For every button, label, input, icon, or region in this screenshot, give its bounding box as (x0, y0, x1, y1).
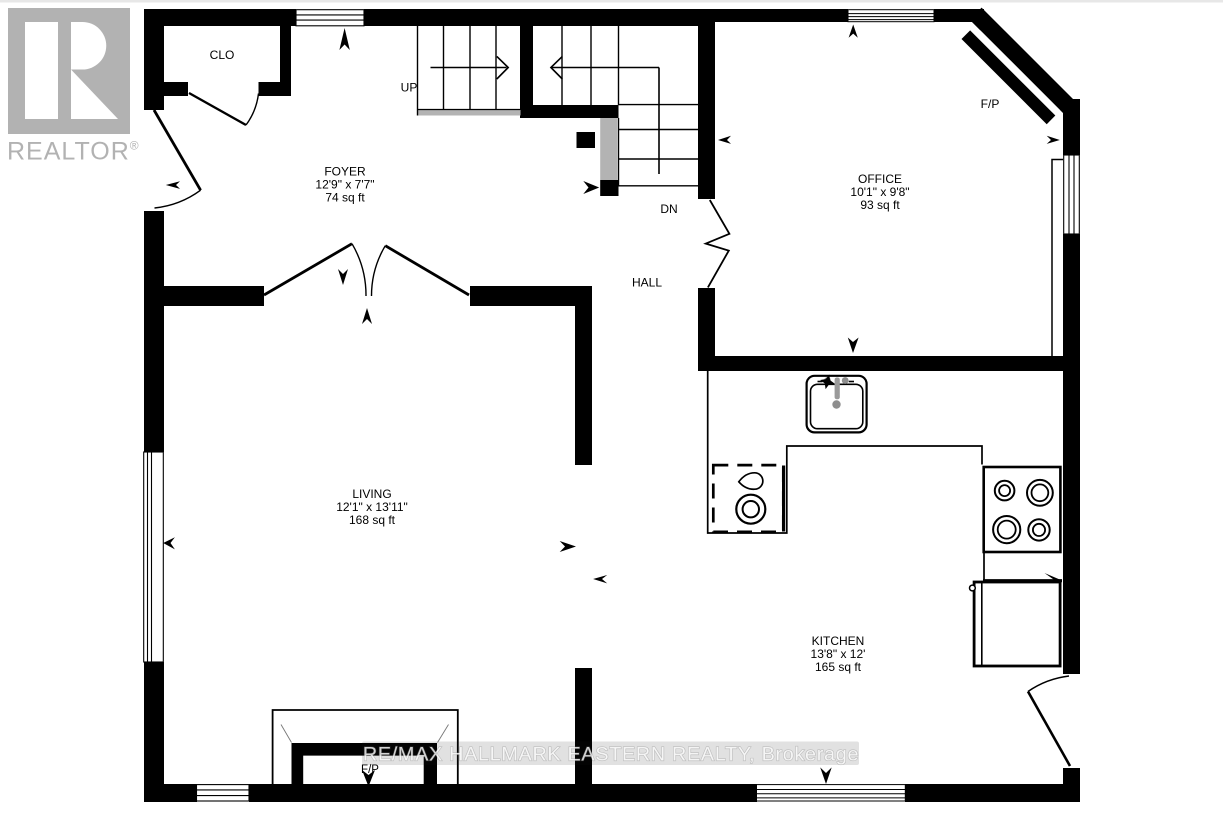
svg-text:DN: DN (660, 202, 677, 216)
svg-text:REALTOR®: REALTOR® (7, 138, 140, 166)
svg-text:FOYER: FOYER (324, 165, 366, 179)
svg-text:74 sq ft: 74 sq ft (325, 191, 365, 205)
svg-text:12'9" x 7'7": 12'9" x 7'7" (315, 178, 374, 192)
svg-text:HALL: HALL (632, 276, 662, 290)
svg-text:OFFICE: OFFICE (858, 172, 902, 186)
svg-text:KITCHEN: KITCHEN (812, 634, 865, 648)
svg-text:93 sq ft: 93 sq ft (860, 198, 900, 212)
svg-text:168 sq ft: 168 sq ft (349, 513, 396, 527)
svg-text:LIVING: LIVING (352, 487, 391, 501)
svg-text:13'8" x 12': 13'8" x 12' (811, 647, 866, 661)
svg-text:165 sq ft: 165 sq ft (815, 660, 862, 674)
svg-text:10'1" x 9'8": 10'1" x 9'8" (850, 185, 909, 199)
svg-text:UP: UP (401, 81, 418, 95)
svg-text:RE/MAX HALLMARK EASTERN REALTY: RE/MAX HALLMARK EASTERN REALTY, Brokerag… (363, 744, 859, 766)
svg-text:12'1" x 13'11": 12'1" x 13'11" (336, 500, 408, 514)
svg-text:CLO: CLO (210, 48, 235, 62)
svg-text:F/P: F/P (981, 97, 1000, 111)
